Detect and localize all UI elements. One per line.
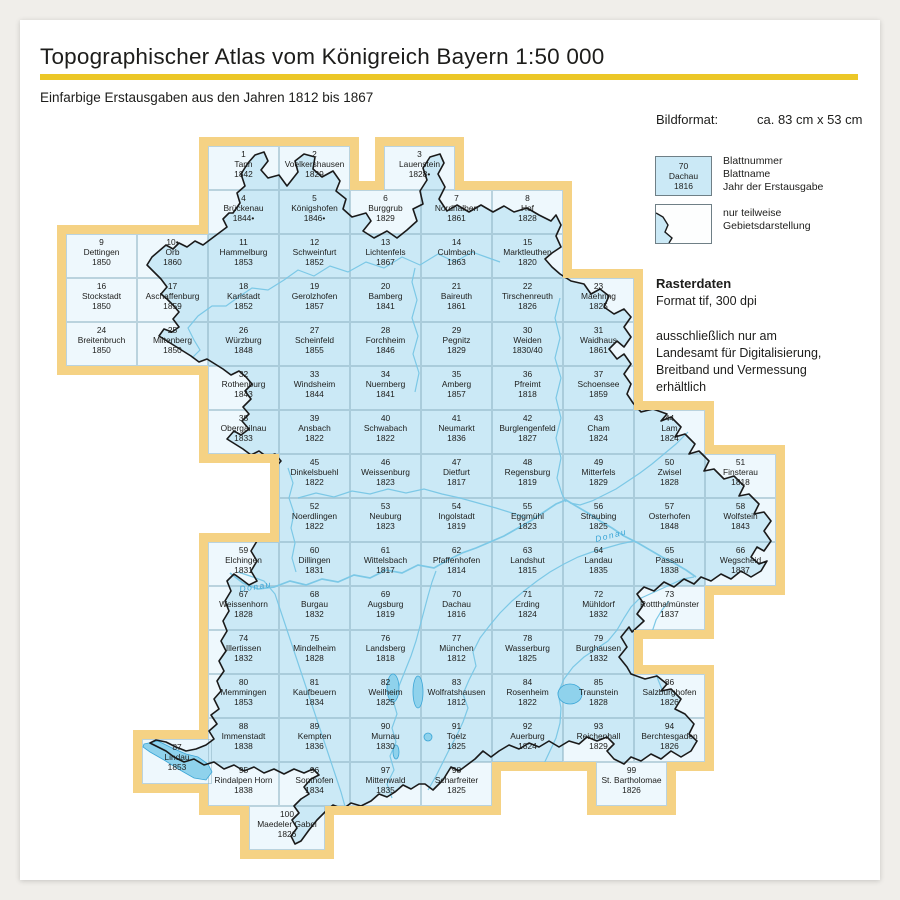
lake-forggensee: [393, 745, 399, 759]
lake-chiemsee: [558, 684, 582, 704]
lake-starnberger-see: [413, 676, 423, 708]
lake-ammersee: [387, 674, 399, 702]
index-map: DonauDonau: [0, 0, 900, 900]
lake-staffelsee: [424, 733, 432, 741]
atlas-index-page: Topographischer Atlas vom Königreich Bay…: [0, 0, 900, 900]
